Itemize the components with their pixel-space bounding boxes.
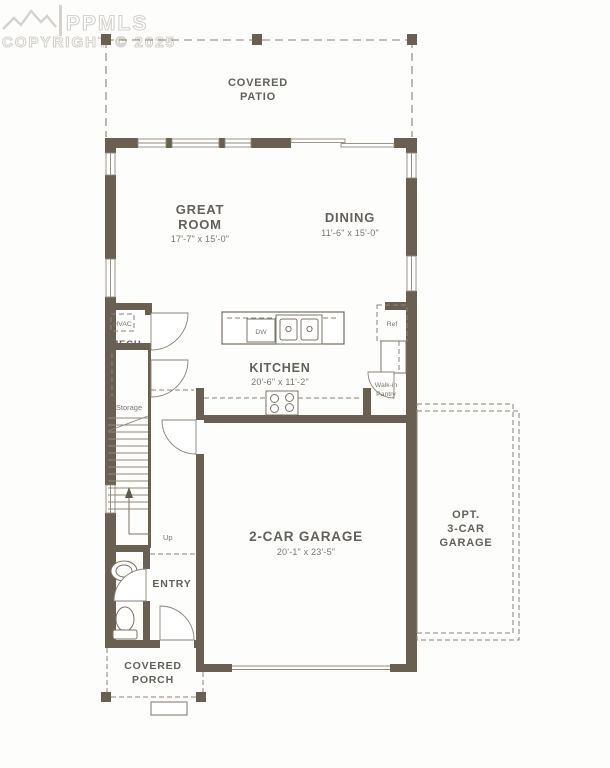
mech-door-swing	[151, 313, 188, 350]
great-room-label-2: ROOM	[178, 217, 222, 232]
up-label: Up	[163, 533, 173, 542]
garage-door	[232, 666, 390, 670]
wall	[105, 640, 160, 648]
wall	[196, 388, 204, 420]
wall	[219, 138, 225, 148]
wall	[196, 664, 232, 672]
opt-garage-label-1: OPT.	[452, 509, 480, 521]
dining-dims: 11'-6" x 15'-0"	[321, 228, 379, 238]
toilet-icon	[113, 607, 137, 639]
watermark-copyright: COPYRIGHT © 2025	[2, 34, 176, 51]
wall	[385, 302, 406, 310]
porch-post	[196, 692, 206, 702]
up-arrow-icon	[125, 487, 133, 498]
porch-post	[101, 692, 111, 702]
garage-label: 2-CAR GARAGE	[249, 529, 363, 544]
mech-room: HVAC MECH	[105, 303, 188, 350]
great-room: GREAT ROOM 17'-7" x 15'-0"	[171, 202, 229, 244]
mech-label: MECH	[110, 339, 141, 350]
ref-counter	[381, 341, 406, 373]
window	[225, 139, 251, 147]
wall	[196, 454, 204, 672]
pantry-label-1: Walk-in	[375, 382, 398, 389]
great-room-dims: 17'-7" x 15'-0"	[171, 234, 229, 244]
window	[172, 139, 219, 147]
double-sink-icon	[276, 315, 322, 344]
patio-post	[407, 34, 417, 45]
window	[106, 153, 115, 175]
watermark: PPMLS COPYRIGHT © 2025	[2, 5, 176, 51]
great-room-label-1: GREAT	[176, 202, 225, 217]
wall	[406, 178, 417, 256]
window	[106, 259, 115, 297]
wall	[406, 291, 417, 672]
window	[138, 139, 166, 147]
covered-porch-label-1: COVERED	[124, 660, 182, 672]
wall	[105, 175, 116, 259]
kitchen: DW KITCHEN 20'-6" x 11'-2" Ref	[204, 302, 407, 415]
watermark-logo-text: PPMLS	[66, 12, 148, 35]
opt-three-car-garage: OPT. 3-CAR GARAGE	[417, 404, 519, 640]
patio-post	[252, 34, 262, 45]
opt-garage-label-2: 3-CAR	[447, 523, 485, 535]
storage-door-swing	[151, 360, 188, 397]
covered-porch-label-2: PORCH	[132, 674, 174, 686]
floor-plan-drawing: PPMLS COPYRIGHT © 2025 COVERED PATIO	[0, 0, 610, 768]
hvac-label: HVAC	[113, 321, 131, 328]
kitchen-dims: 20'-6" x 11'-2"	[251, 377, 309, 387]
mountain-range-icon	[3, 11, 56, 29]
front-door-swing	[160, 606, 194, 640]
covered-patio-label-1: COVERED	[228, 77, 288, 89]
garage-entry-door-swing	[162, 420, 196, 454]
window	[407, 256, 416, 291]
dining-room: DINING 11'-6" x 15'-0"	[321, 210, 379, 238]
wall	[143, 545, 150, 569]
sliding-door	[291, 139, 394, 147]
covered-patio-label-2: PATIO	[240, 91, 276, 103]
stairs: Storage Up	[108, 350, 188, 548]
watermark-divider	[59, 5, 62, 36]
porch-step	[151, 702, 187, 715]
garage-dims: 20'-1" x 23'-5"	[277, 547, 335, 557]
wall	[105, 138, 116, 153]
wall	[105, 303, 152, 310]
dining-label: DINING	[325, 210, 375, 225]
wall	[251, 138, 291, 148]
patio-post	[101, 34, 111, 45]
two-car-garage: 2-CAR GARAGE 20'-1" x 23'-5"	[162, 388, 417, 672]
range-icon	[266, 391, 298, 415]
wall	[390, 664, 417, 672]
entry-label: ENTRY	[152, 578, 191, 590]
refrigerator-label: Ref	[387, 321, 398, 328]
covered-porch: COVERED PORCH	[101, 648, 206, 715]
storage-label: Storage	[116, 403, 142, 412]
window	[407, 153, 416, 178]
wall	[406, 138, 417, 153]
wall	[204, 415, 417, 423]
opt-garage-label-3: GARAGE	[439, 537, 492, 549]
pantry-label-2: Pantry	[376, 391, 396, 398]
floor-plan-page: PPMLS COPYRIGHT © 2025 COVERED PATIO	[0, 0, 610, 768]
wall	[105, 513, 116, 648]
dishwasher-label: DW	[255, 329, 267, 336]
kitchen-label: KITCHEN	[249, 361, 310, 375]
wall	[166, 138, 172, 148]
